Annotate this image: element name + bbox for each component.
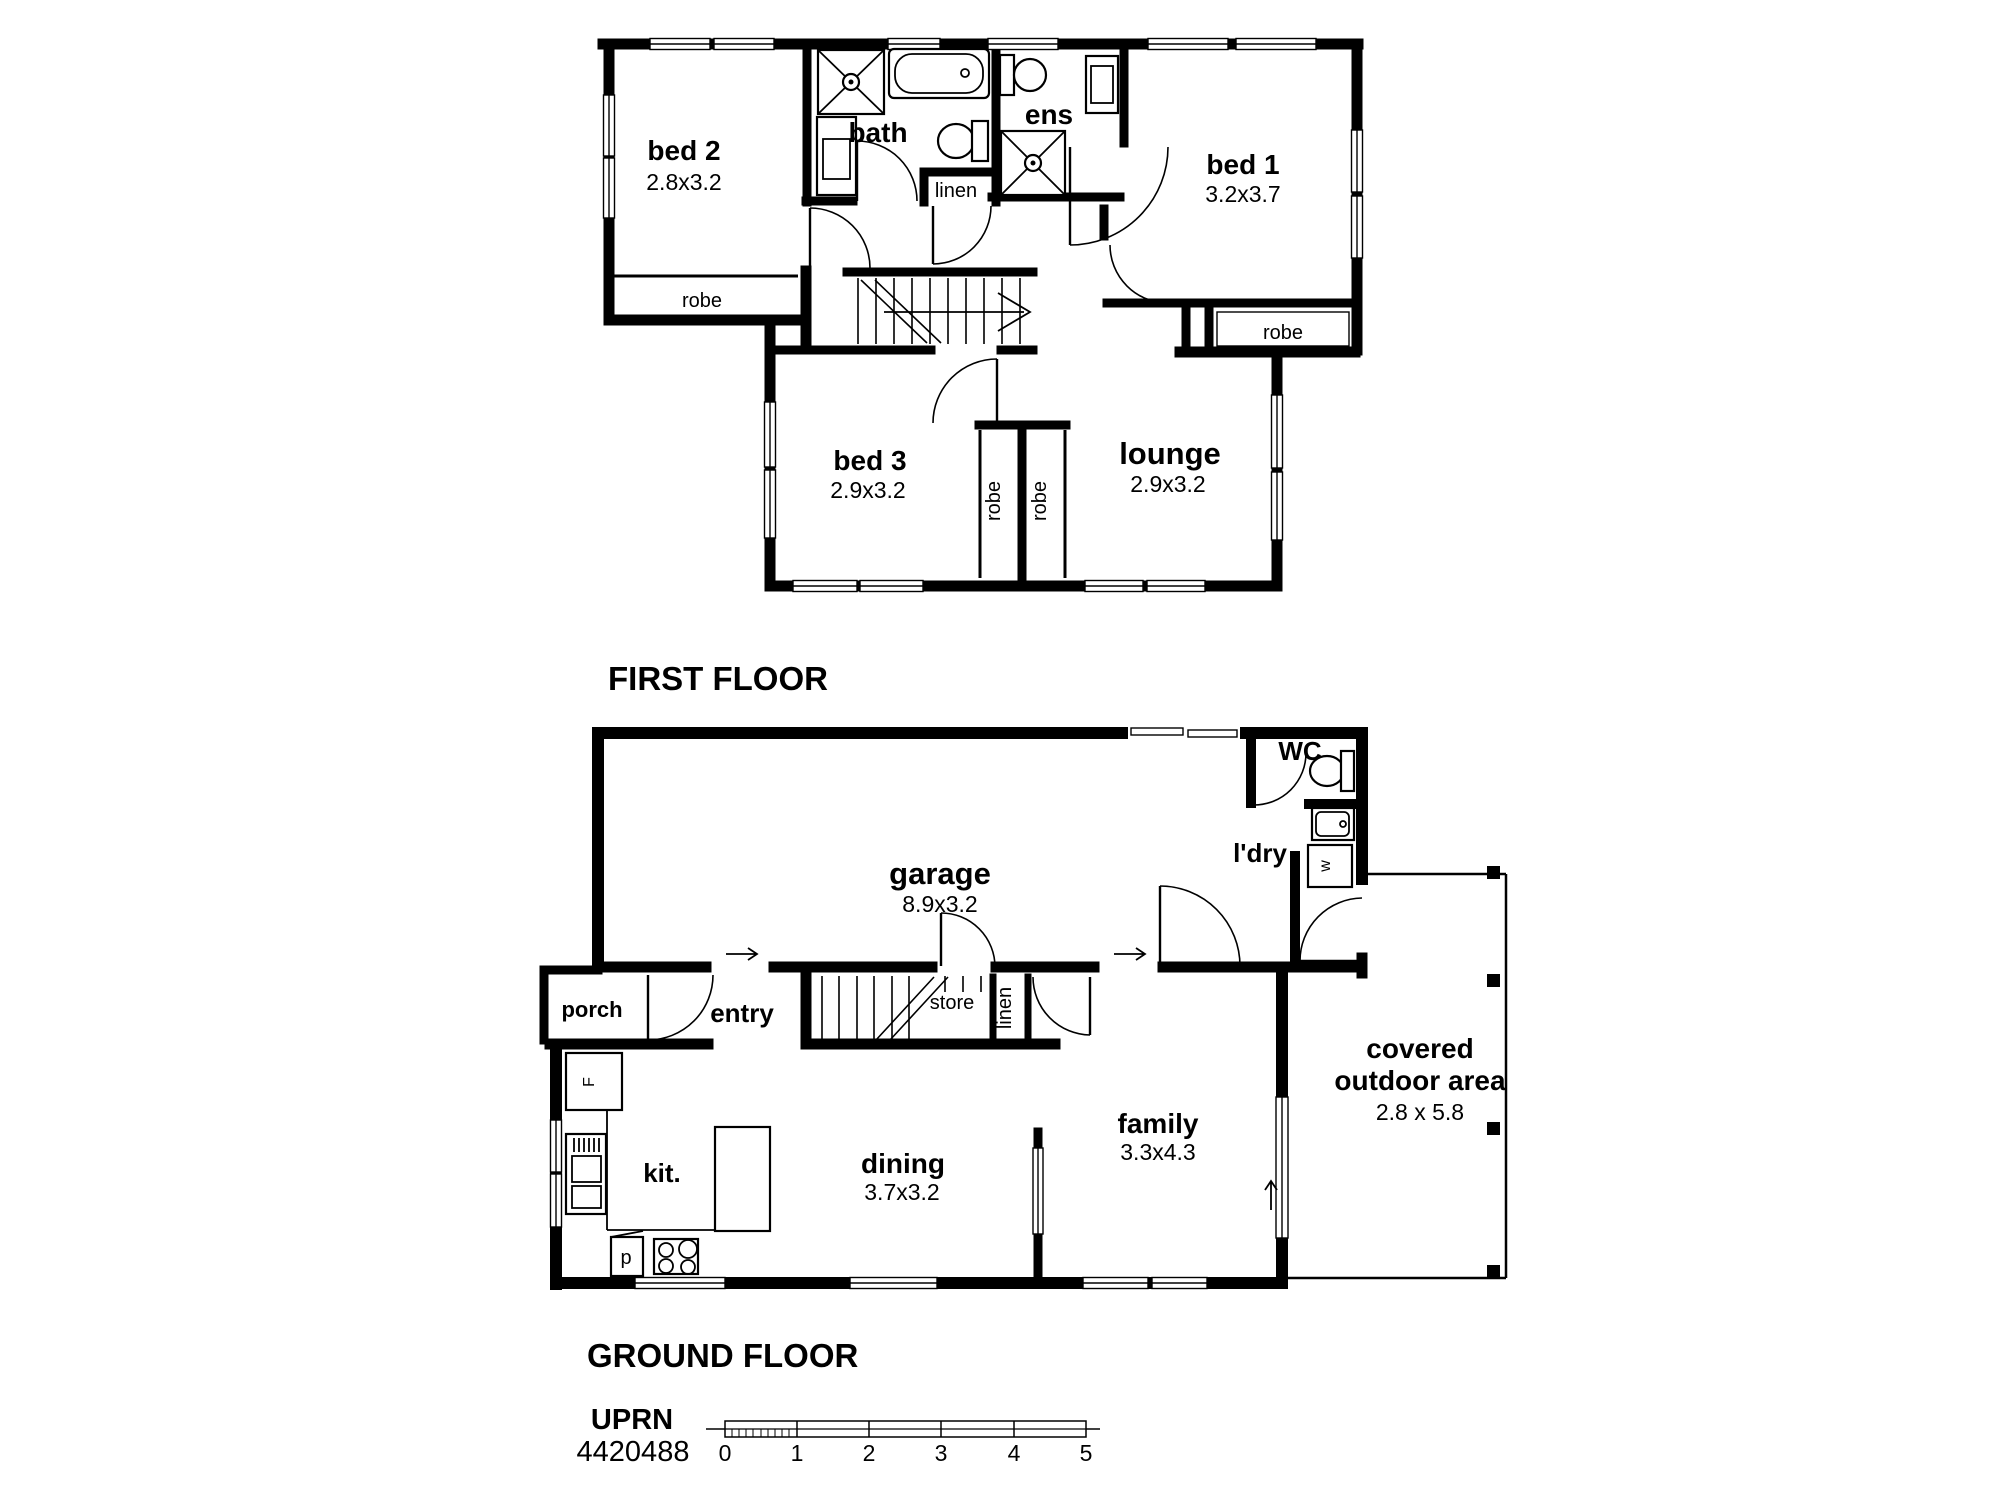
floorplan-drawing: bed 2 2.8x3.2 bath ens linen bed 1 3.2x3… [0, 0, 2000, 1500]
ff-ens-shower-fixture [1001, 131, 1065, 195]
uprn-number: 4420488 [577, 1436, 690, 1468]
gf-fridge-letter: F [581, 1077, 598, 1087]
gf-entry-label: entry [710, 998, 774, 1028]
gf-outdoor-dims: 2.8 x 5.8 [1376, 1099, 1464, 1125]
gf-stair-walls [550, 977, 1055, 1044]
gf-family-label: family [1118, 1108, 1199, 1139]
floorplan-page: bed 2 2.8x3.2 bath ens linen bed 1 3.2x3… [0, 0, 2000, 1500]
scale-number-4: 4 [1008, 1440, 1021, 1466]
gf-outdoor-label-2: outdoor area [1334, 1065, 1506, 1096]
scale-number-0: 0 [719, 1440, 732, 1466]
ground-floor-plan: garage 8.9x3.2 WC l'dry porch entry stor… [544, 727, 1506, 1374]
scale-number-3: 3 [935, 1440, 948, 1466]
ff-bath-shower-fixture [818, 50, 884, 114]
ff-bath-toilet-fixture [938, 121, 988, 161]
gf-store-label: store [930, 992, 974, 1014]
scale-number-5: 5 [1080, 1440, 1093, 1466]
scale-number-1: 1 [791, 1440, 804, 1466]
scale-number-2: 2 [863, 1440, 876, 1466]
ff-robe-bed1-label: robe [1263, 322, 1303, 344]
ff-bed3-dims: 2.9x3.2 [830, 477, 905, 503]
gf-kitchen-sink-fixture [566, 1134, 606, 1214]
ff-bed2-label: bed 2 [647, 135, 720, 166]
gf-corridor-north-wall [598, 958, 1362, 973]
ff-stairs [858, 278, 1030, 344]
ff-bed1-label: bed 1 [1206, 149, 1279, 180]
gf-outdoor-label-1: covered [1366, 1033, 1473, 1064]
gf-porch-label: porch [561, 997, 622, 1022]
gf-pantry-letter: p [620, 1247, 631, 1269]
gf-washer-letter: w [1317, 860, 1334, 873]
gf-garage-dims: 8.9x3.2 [902, 891, 977, 917]
ff-bed1-dims: 3.2x3.7 [1205, 181, 1280, 207]
gf-linen-label: linen [994, 987, 1016, 1029]
scale-bar: 0 1 2 3 4 5 [706, 1421, 1100, 1466]
uprn-label: UPRN [591, 1404, 673, 1436]
ff-lounge-label: lounge [1119, 436, 1221, 471]
gf-dining-dims: 3.7x3.2 [864, 1179, 939, 1205]
ff-ens-vanity-fixture [1086, 56, 1118, 113]
gf-family-dims: 3.3x4.3 [1120, 1139, 1195, 1165]
first-floor-title: FIRST FLOOR [608, 660, 828, 697]
ff-bed3-label: bed 3 [833, 445, 906, 476]
gf-garage-label: garage [889, 856, 991, 891]
ground-floor-title: GROUND FLOOR [587, 1337, 858, 1374]
ff-bed2-dims: 2.8x3.2 [646, 169, 721, 195]
gf-laundry-sink-fixture [1312, 808, 1354, 840]
gf-dining-label: dining [861, 1148, 945, 1179]
gf-wc-label: WC [1278, 736, 1322, 766]
ff-ens-toilet-fixture [1000, 55, 1046, 95]
gf-kitchen-label: kit. [643, 1158, 681, 1188]
first-floor-plan: bed 2 2.8x3.2 bath ens linen bed 1 3.2x3… [603, 39, 1363, 698]
gf-ldry-label: l'dry [1233, 838, 1287, 868]
gf-kitchen-bench [607, 1110, 770, 1231]
footer: UPRN 4420488 0 1 2 3 4 5 [577, 1404, 1100, 1468]
gf-stove-fixture [654, 1239, 698, 1274]
ff-robe-bed2-label: robe [682, 290, 722, 312]
ff-bath-label: bath [848, 117, 907, 148]
ff-bathtub-fixture [889, 49, 989, 98]
ff-robe-lounge-label: robe [1029, 481, 1051, 521]
ff-ens-label: ens [1025, 99, 1073, 130]
ff-lounge-dims: 2.9x3.2 [1130, 471, 1205, 497]
ff-robe-bed3-label: robe [983, 481, 1005, 521]
ff-linen-label: linen [935, 180, 977, 202]
